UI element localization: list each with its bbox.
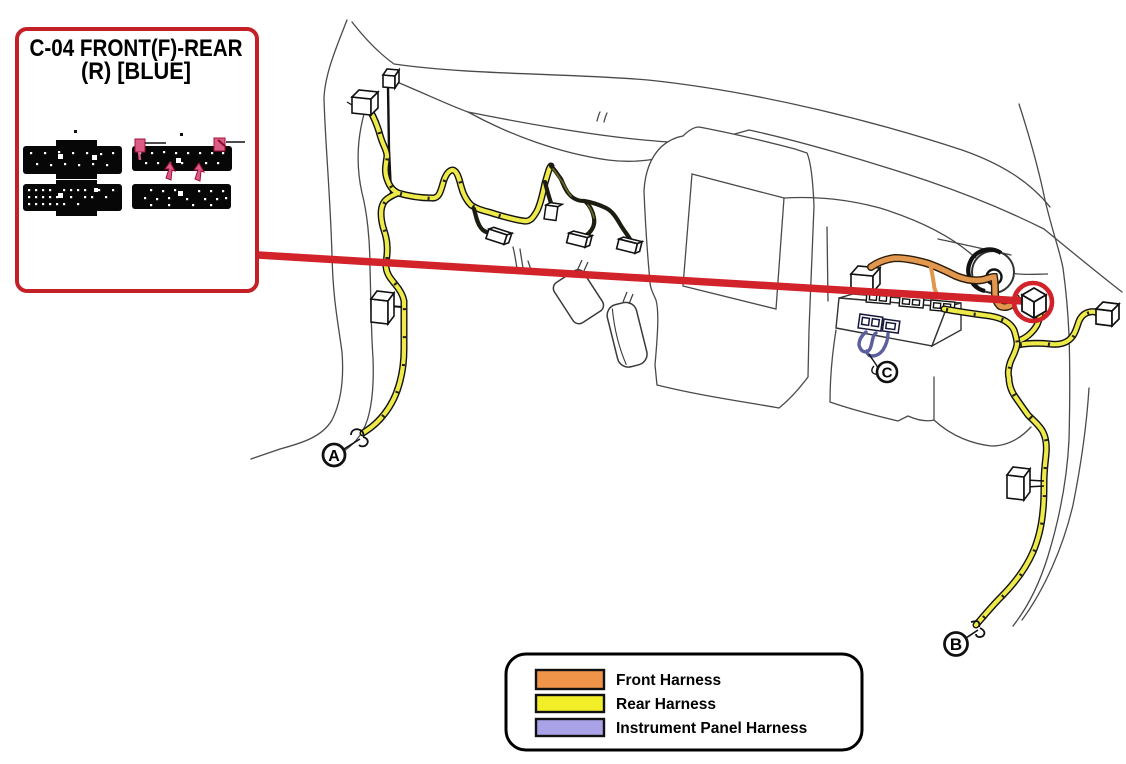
svg-text:A: A [328,448,340,465]
svg-text:Rear Harness: Rear Harness [616,696,716,713]
svg-text:C: C [882,365,893,382]
svg-text:Front Harness: Front Harness [616,672,721,689]
svg-text:(R) [BLUE]: (R) [BLUE] [81,58,191,85]
svg-text:B: B [950,635,962,654]
svg-text:Instrument Panel Harness: Instrument Panel Harness [616,720,807,737]
